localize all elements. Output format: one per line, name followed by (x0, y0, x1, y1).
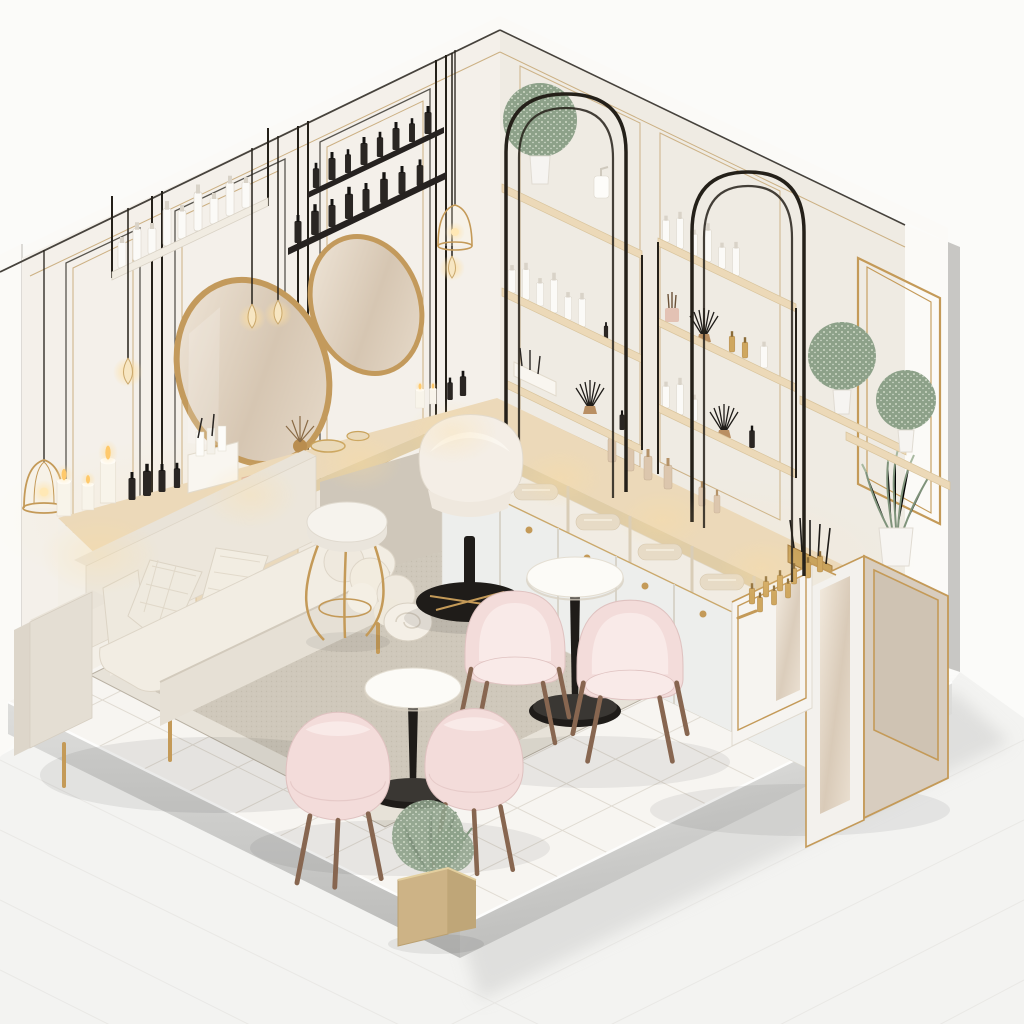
scene-canvas (0, 0, 1024, 1024)
salon-diorama (0, 0, 1024, 1024)
